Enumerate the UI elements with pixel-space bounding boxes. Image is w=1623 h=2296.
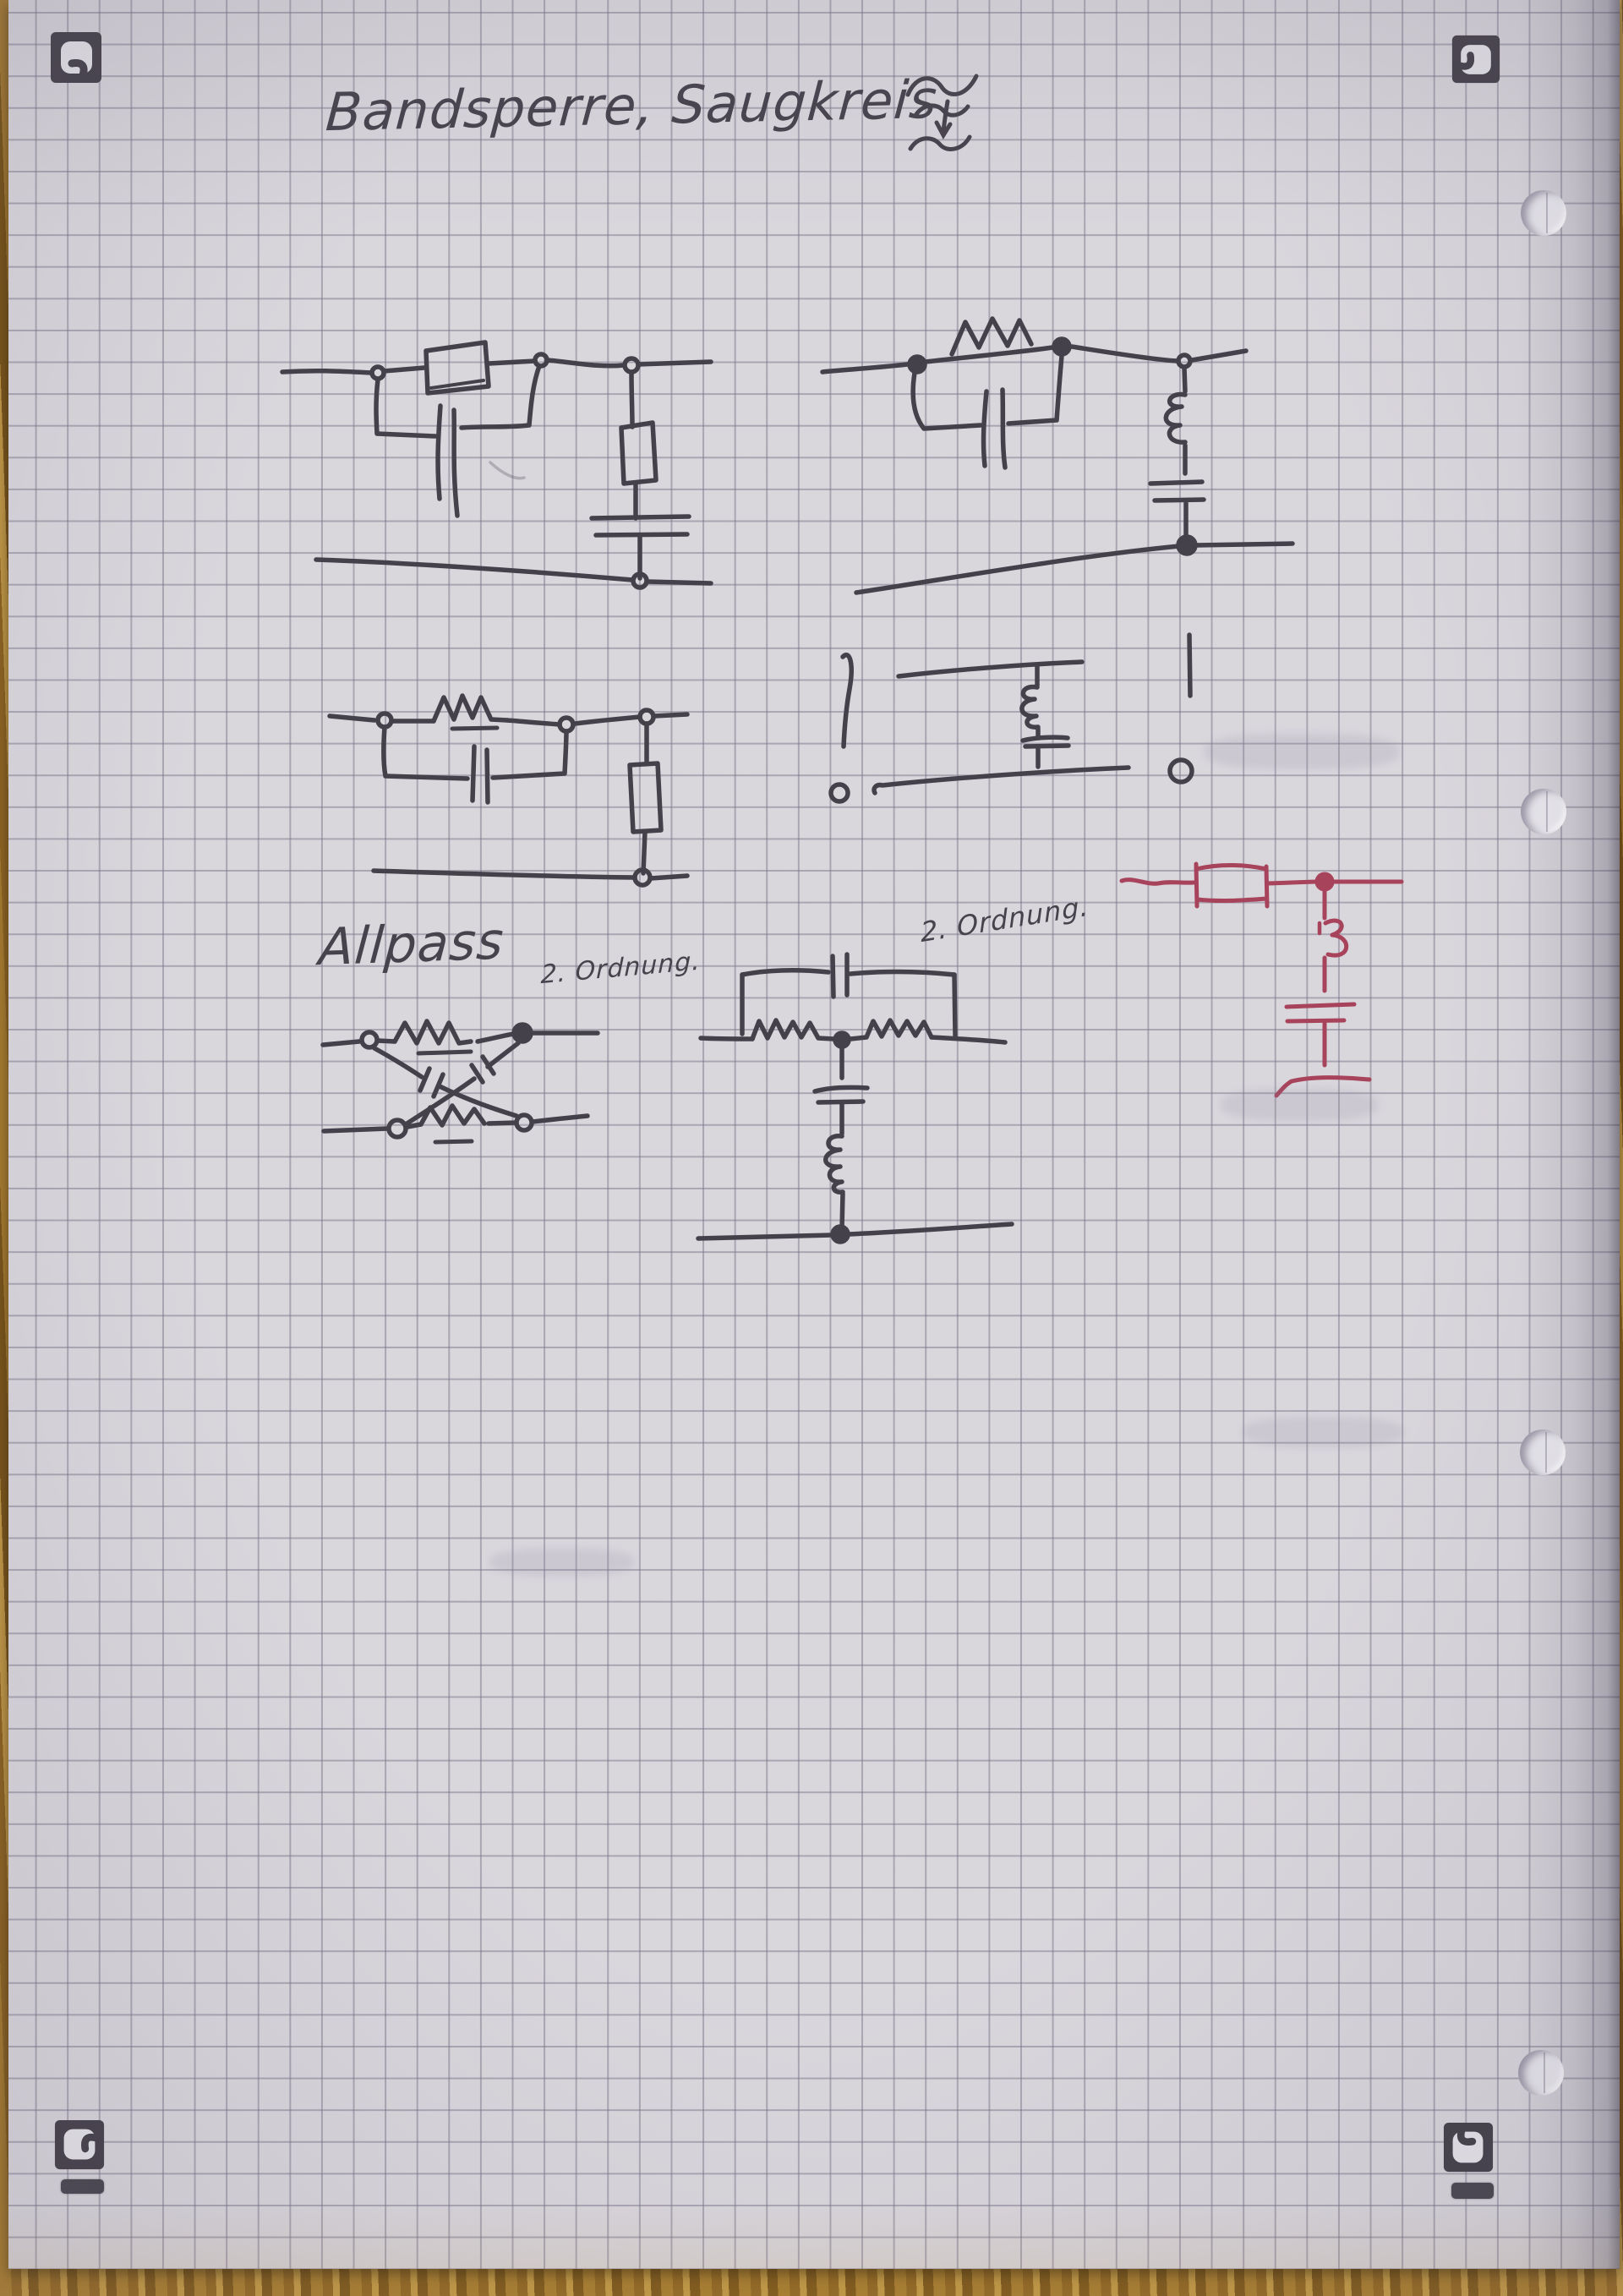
wire	[533, 1116, 587, 1122]
capacitor-plate	[1287, 1020, 1344, 1021]
resistor-underline	[435, 1141, 472, 1142]
wire	[489, 361, 535, 364]
wire	[323, 1041, 359, 1045]
resistor-underline	[452, 728, 497, 729]
node-dot	[1054, 339, 1069, 354]
ink-bleedthrough-ghost	[1221, 1089, 1378, 1121]
capacitor-plate	[1150, 482, 1202, 484]
node-dot	[910, 357, 925, 372]
node-dot	[625, 358, 638, 372]
capacitor-plate	[1155, 500, 1204, 500]
main-wire	[932, 1037, 1005, 1042]
wire	[489, 1123, 516, 1123]
page-title: Bandsperre, Saugkreis	[324, 68, 939, 143]
wire	[1072, 347, 1177, 361]
wire	[478, 1034, 514, 1041]
punch-hole-4	[1518, 2050, 1564, 2096]
resistor-underline	[418, 1052, 471, 1053]
punch-hole-1	[1521, 190, 1566, 236]
resistor-zigzag	[850, 1020, 932, 1039]
capacitor-plate	[1023, 737, 1068, 741]
wire	[926, 347, 1052, 362]
bottom-rail	[316, 560, 711, 583]
node-dot	[389, 1120, 406, 1137]
wire	[507, 720, 560, 724]
wire	[639, 362, 711, 364]
wire	[282, 371, 372, 373]
scan-marker-bar-bottom-right	[1451, 2183, 1494, 2199]
resistor-zigzag	[434, 696, 507, 721]
resistor-zigzag	[952, 319, 1031, 354]
parallel-branch-wire	[1008, 356, 1062, 424]
node-dot	[1178, 355, 1190, 367]
right-port-terminal-circle	[1170, 760, 1192, 782]
wire	[330, 716, 374, 720]
wire	[822, 364, 907, 372]
shunt-box-resistor	[630, 763, 661, 832]
resistor-box-bottom	[1197, 899, 1266, 901]
node-dot	[835, 1033, 849, 1047]
parallel-branch-wire	[462, 366, 539, 428]
wire	[378, 1041, 395, 1041]
wire	[384, 368, 424, 371]
page-right-edge-shadow	[1518, 0, 1620, 2269]
shunt-wire	[1184, 368, 1185, 391]
wire	[1122, 880, 1194, 884]
capacitor-plate	[438, 406, 440, 499]
capacitor-plate	[487, 750, 488, 802]
circuit-bandstop-boxed-parallel-C	[270, 325, 727, 596]
circuit-saugkreis-two-port	[811, 621, 1209, 850]
wire	[654, 714, 687, 716]
wire	[324, 1129, 387, 1131]
shunt-wire	[643, 832, 645, 873]
node-dot	[833, 1227, 848, 1242]
left-port-exclamation-stroke	[843, 655, 851, 746]
left-port-terminal-circle	[831, 784, 848, 801]
resistor-zigzag	[395, 1021, 471, 1043]
scan-marker-bottom-right	[1442, 2121, 1495, 2173]
scan-marker-bar-bottom-left	[61, 2179, 104, 2194]
bridge-wire	[954, 975, 955, 1036]
main-wire	[701, 1038, 752, 1039]
capacitor-plate	[984, 391, 986, 466]
inductor-coil	[1325, 921, 1347, 955]
node-dot	[362, 1032, 377, 1047]
parallel-branch-wire	[384, 727, 467, 779]
wire	[575, 717, 640, 724]
node-dot	[535, 354, 547, 366]
ink-bleedthrough-ghost	[490, 1549, 634, 1576]
capacitor-plate	[833, 956, 833, 997]
node-dot	[1317, 874, 1332, 889]
ink-bleedthrough-ghost	[1243, 1417, 1403, 1447]
capacitor-plate	[473, 746, 474, 801]
bottom-rail	[698, 1224, 1012, 1238]
inductor-coil	[826, 1136, 843, 1193]
bottom-rail	[856, 544, 1292, 593]
right-port-exclamation-stroke	[1189, 635, 1190, 696]
capacitor-ticks	[420, 1069, 443, 1096]
parallel-branch-wire	[913, 373, 981, 429]
scan-marker-top-right	[1451, 34, 1501, 85]
wire	[548, 360, 624, 366]
inductor-coil	[1166, 394, 1185, 442]
capacitor-plate	[1003, 390, 1005, 467]
scan-marker-bottom-left	[53, 2118, 106, 2171]
node-dot	[516, 1115, 532, 1130]
frequency-squiggle-icon	[894, 61, 996, 171]
circuit-bridged-t-notch	[685, 943, 1023, 1255]
photo-scene: Bandsperre, Saugkreis	[0, 0, 1623, 2296]
resistor-zigzag	[752, 1020, 833, 1039]
resistor-box-top	[1196, 865, 1266, 869]
node-dot	[372, 367, 384, 379]
shunt-wire	[842, 1194, 843, 1228]
parallel-branch-wire	[493, 731, 566, 778]
node-dot	[514, 1025, 531, 1041]
inductor-coil	[1022, 686, 1038, 727]
capacitor-plate	[596, 534, 687, 535]
capacitor-plate	[592, 517, 689, 518]
node-dot	[633, 574, 647, 588]
stray-scratch	[490, 462, 524, 478]
scan-marker-top-left	[49, 30, 103, 85]
capacitor-plate	[1025, 746, 1068, 746]
punch-hole-3	[1520, 1430, 1566, 1475]
capacitor-plate	[454, 410, 457, 516]
bridge-wire	[850, 971, 954, 975]
top-rail	[899, 662, 1082, 676]
shunt-wire	[631, 373, 632, 427]
bridge-wire	[742, 970, 828, 975]
allpass-label: Allpass	[317, 911, 506, 977]
ink-bleedthrough-ghost	[1205, 734, 1399, 769]
shunt-box-resistor	[621, 423, 656, 484]
capacitor-plate	[1287, 1004, 1354, 1007]
bottom-rail	[874, 768, 1128, 793]
wire	[1192, 351, 1246, 360]
circuit-R-parallel-C-LC-shunt	[795, 300, 1302, 604]
capacitor-plate	[815, 1087, 867, 1091]
circuit-parallel-RC-shunt-box	[317, 672, 697, 892]
punch-hole-2	[1521, 789, 1566, 834]
circuit-red-series-R-shunt-LC	[1095, 845, 1416, 1107]
wire	[1268, 882, 1315, 883]
